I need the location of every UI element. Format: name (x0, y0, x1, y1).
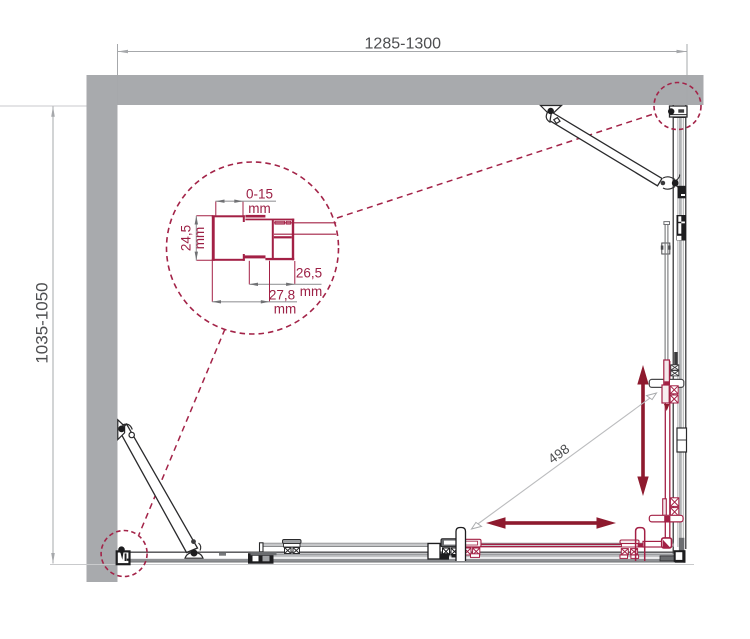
svg-text:mm: mm (248, 201, 271, 216)
svg-text:mm: mm (300, 284, 323, 299)
svg-text:0-15: 0-15 (246, 186, 273, 201)
svg-text:26,5: 26,5 (296, 266, 322, 281)
svg-text:mm: mm (192, 227, 207, 250)
svg-text:1035-1050: 1035-1050 (32, 282, 51, 363)
svg-text:mm: mm (274, 301, 297, 316)
svg-text:27,8: 27,8 (269, 287, 295, 302)
svg-text:1285-1300: 1285-1300 (365, 36, 442, 53)
